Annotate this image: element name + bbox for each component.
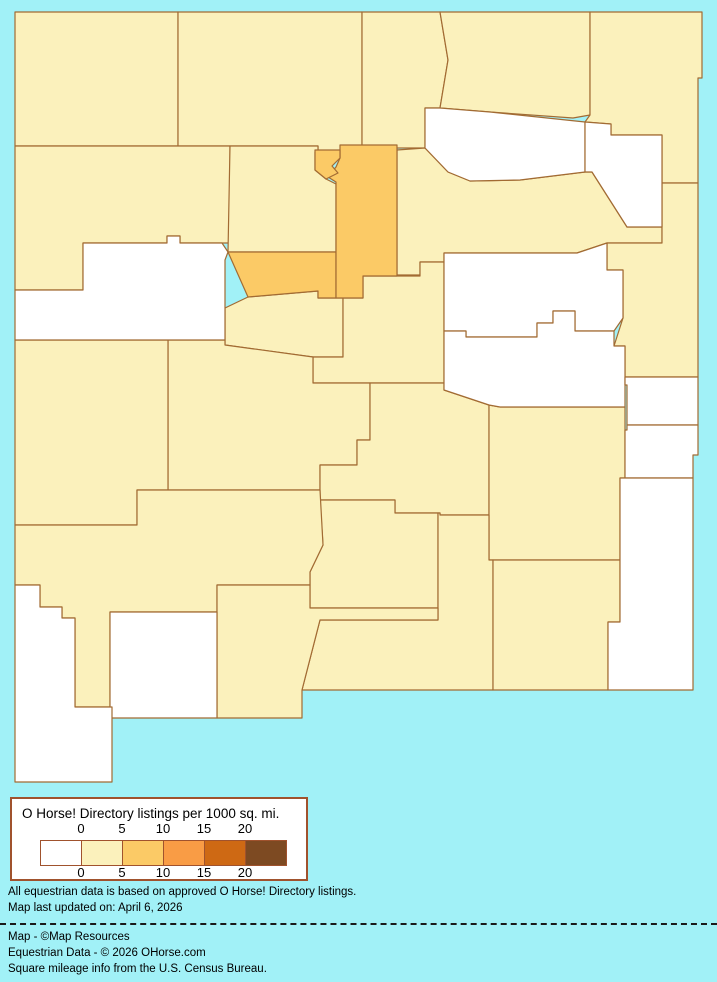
legend-swatch-5 bbox=[246, 841, 286, 865]
legend-ticks-bottom-label-20: 20 bbox=[238, 865, 252, 880]
legend-ticks-top-label-10: 10 bbox=[156, 821, 170, 836]
credit-equestrian-data: Equestrian Data - © 2026 OHorse.com bbox=[8, 947, 206, 959]
county-colfax[interactable] bbox=[440, 12, 590, 118]
county-curry[interactable] bbox=[625, 377, 698, 425]
county-santa-fe[interactable] bbox=[328, 145, 397, 298]
legend-swatch-1 bbox=[82, 841, 123, 865]
county-rio-arriba[interactable] bbox=[178, 12, 362, 152]
legend-swatch-4 bbox=[205, 841, 246, 865]
dashed-separator bbox=[0, 923, 717, 925]
legend-ticks-bottom-label-0: 0 bbox=[77, 865, 84, 880]
legend-box: O Horse! Directory listings per 1000 sq.… bbox=[10, 797, 308, 881]
legend-swatch-0 bbox=[41, 841, 82, 865]
note-data-source: All equestrian data is based on approved… bbox=[8, 886, 356, 898]
legend-ticks-bottom-label-15: 15 bbox=[197, 865, 211, 880]
county-bernalillo[interactable] bbox=[228, 252, 336, 298]
county-luna[interactable] bbox=[110, 612, 217, 718]
legend-swatch-2 bbox=[123, 841, 164, 865]
legend-title: O Horse! Directory listings per 1000 sq.… bbox=[22, 806, 279, 821]
legend-ticks-top-label-0: 0 bbox=[77, 821, 84, 836]
county-lea[interactable] bbox=[608, 478, 693, 690]
county-mora[interactable] bbox=[425, 108, 585, 181]
legend-ticks-top: 05101520 bbox=[12, 821, 306, 837]
legend-ticks-bottom-label-5: 5 bbox=[118, 865, 125, 880]
legend-ticks-top-label-5: 5 bbox=[118, 821, 125, 836]
credit-map: Map - ©Map Resources bbox=[8, 931, 130, 943]
legend-ticks-bottom: 05101520 bbox=[12, 865, 306, 881]
credit-census: Square mileage info from the U.S. Census… bbox=[8, 963, 267, 975]
nm-county-map bbox=[0, 0, 717, 790]
county-roosevelt[interactable] bbox=[625, 425, 698, 478]
county-eddy[interactable] bbox=[493, 560, 620, 690]
county-guadalupe[interactable] bbox=[444, 243, 623, 337]
county-sierra[interactable] bbox=[310, 500, 438, 608]
county-san-juan[interactable] bbox=[15, 12, 178, 146]
county-chaves[interactable] bbox=[489, 405, 625, 560]
note-last-updated: Map last updated on: April 6, 2026 bbox=[8, 902, 183, 914]
legend-swatch-3 bbox=[164, 841, 205, 865]
legend-color-bar bbox=[40, 840, 287, 866]
legend-ticks-top-label-15: 15 bbox=[197, 821, 211, 836]
legend-ticks-top-label-20: 20 bbox=[238, 821, 252, 836]
legend-ticks-bottom-label-10: 10 bbox=[156, 865, 170, 880]
